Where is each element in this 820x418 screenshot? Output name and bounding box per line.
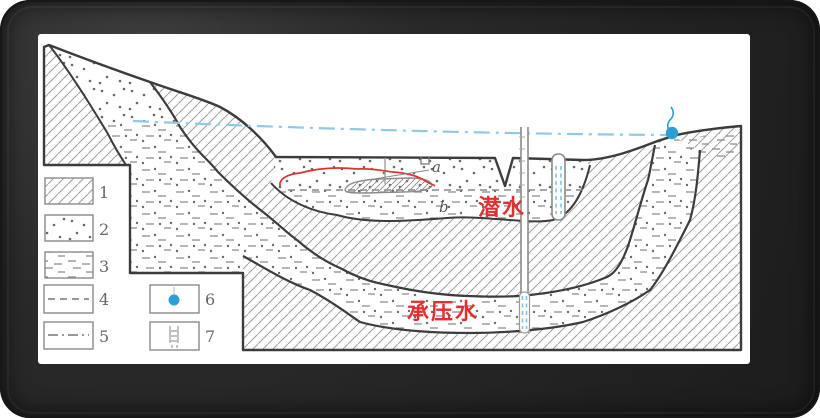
spring-icon <box>666 107 678 139</box>
legend-number: 5 <box>99 327 109 346</box>
legend-swatch-dots <box>45 215 93 241</box>
legend-item-5: 5 <box>44 322 109 349</box>
shallow-well <box>552 154 565 220</box>
legend-item-3: 3 <box>45 252 109 278</box>
cross-section-svg: a b 潜水 承压水 1 2 3 <box>38 34 750 364</box>
legend-number: 6 <box>205 290 215 309</box>
screenshot: a b 潜水 承压水 1 2 3 <box>0 0 820 418</box>
legend-number: 3 <box>99 257 109 276</box>
terrain-block <box>38 34 750 364</box>
legend-number: 7 <box>205 327 215 346</box>
legend-number: 4 <box>99 290 109 309</box>
diagram-canvas: a b 潜水 承压水 1 2 3 <box>38 34 750 364</box>
legend-number: 2 <box>99 220 109 239</box>
legend-swatch-dashes <box>45 252 93 278</box>
legend-item-6: 6 <box>150 285 215 313</box>
legend-number: 1 <box>99 183 109 202</box>
legend-item-4: 4 <box>44 285 109 313</box>
confined-water-label: 承压水 <box>407 299 479 325</box>
phreatic-water-label: 潜水 <box>478 195 526 221</box>
legend-swatch-hatch <box>45 178 93 204</box>
legend-item-7: 7 <box>150 322 215 350</box>
label-b: b <box>439 198 449 216</box>
legend-item-1: 1 <box>45 178 109 204</box>
legend-item-2: 2 <box>45 215 109 241</box>
label-a: a <box>432 158 441 176</box>
deep-well-screen <box>520 292 530 333</box>
legend-spring-icon <box>169 295 180 306</box>
deep-well <box>519 127 530 333</box>
